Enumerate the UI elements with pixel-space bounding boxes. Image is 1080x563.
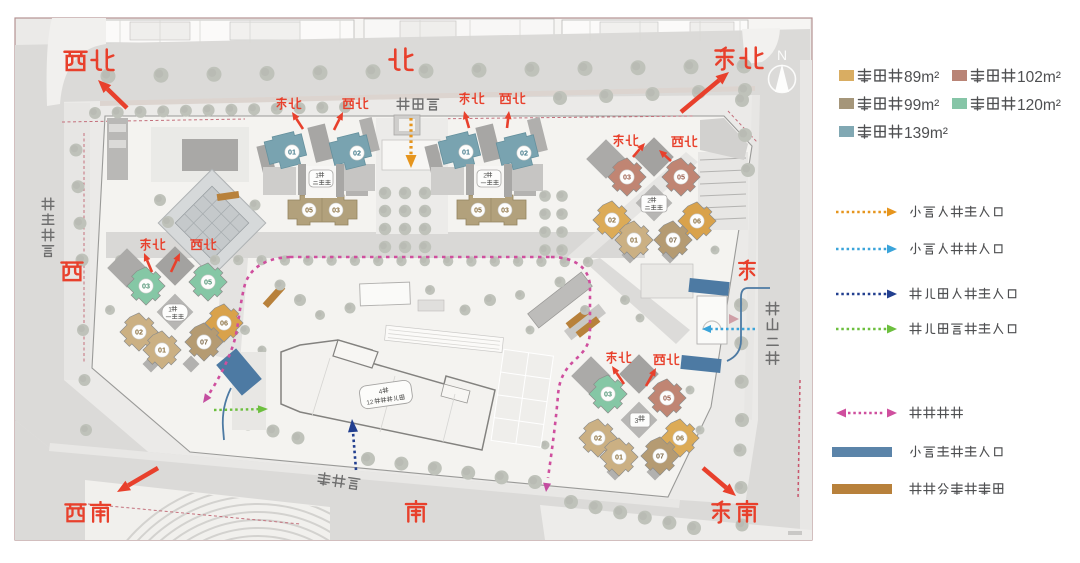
svg-text:05: 05 bbox=[305, 208, 313, 215]
svg-text:3: 3 bbox=[635, 418, 639, 425]
svg-text:06: 06 bbox=[693, 217, 701, 226]
svg-text:01: 01 bbox=[462, 148, 470, 157]
svg-text:02: 02 bbox=[594, 434, 602, 443]
svg-text:02: 02 bbox=[353, 149, 361, 158]
svg-text:03: 03 bbox=[332, 208, 340, 215]
svg-text:02: 02 bbox=[520, 149, 528, 158]
svg-text:89m²: 89m² bbox=[904, 69, 939, 86]
svg-text:06: 06 bbox=[220, 319, 228, 328]
svg-text:03: 03 bbox=[604, 390, 612, 399]
svg-text:03: 03 bbox=[142, 282, 150, 291]
svg-text:102m²: 102m² bbox=[1017, 69, 1061, 86]
svg-text:03: 03 bbox=[501, 208, 509, 215]
svg-text:07: 07 bbox=[656, 452, 664, 461]
svg-text:06: 06 bbox=[676, 434, 684, 443]
svg-text:01: 01 bbox=[630, 236, 638, 245]
svg-text:05: 05 bbox=[474, 208, 482, 215]
svg-text:01: 01 bbox=[158, 346, 166, 355]
svg-text:02: 02 bbox=[135, 328, 143, 337]
svg-text:07: 07 bbox=[200, 338, 208, 347]
svg-text:01: 01 bbox=[615, 453, 623, 462]
svg-text:139m²: 139m² bbox=[904, 125, 948, 142]
svg-text:05: 05 bbox=[663, 394, 671, 403]
svg-text:03: 03 bbox=[623, 173, 631, 182]
svg-text:02: 02 bbox=[608, 216, 616, 225]
svg-text:05: 05 bbox=[204, 278, 212, 287]
svg-text:01: 01 bbox=[288, 148, 296, 157]
svg-text:05: 05 bbox=[677, 173, 685, 182]
svg-text:120m²: 120m² bbox=[1017, 97, 1061, 114]
svg-text:07: 07 bbox=[669, 236, 677, 245]
svg-text:N: N bbox=[777, 47, 787, 63]
svg-text:99m²: 99m² bbox=[904, 97, 939, 114]
